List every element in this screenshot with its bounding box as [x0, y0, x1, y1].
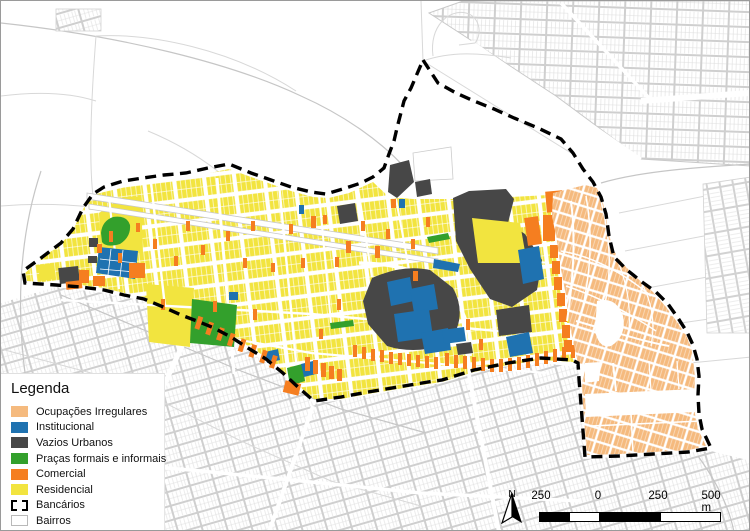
legend-swatch-icon	[11, 437, 28, 448]
legend-item-label: Residencial	[36, 484, 93, 496]
map-screenshot: Legenda Ocupações Irregulares Institucio…	[0, 0, 750, 531]
scale-number: 250	[531, 490, 550, 502]
legend-swatch-icon	[11, 453, 28, 464]
scale-number: 250	[648, 490, 667, 502]
legend-swatch-icon	[11, 469, 28, 480]
legend-item: Institucional	[11, 420, 158, 436]
scale-number: 500 m	[702, 490, 725, 514]
legend-item-label: Bancários	[36, 499, 85, 511]
legend-swatch-icon	[11, 515, 28, 526]
scale-number: 0	[595, 490, 601, 502]
scale-segment	[540, 513, 569, 521]
legend-item-label: Vazios Urbanos	[36, 437, 113, 449]
legend-panel: Legenda Ocupações Irregulares Institucio…	[1, 373, 165, 530]
legend-item: Ocupações Irregulares	[11, 404, 158, 420]
legend-item: Bancários	[11, 498, 158, 514]
scale-segment	[660, 513, 720, 521]
legend-item-label: Bairros	[36, 515, 71, 527]
legend-swatch-icon	[11, 484, 28, 495]
legend-swatch-icon	[11, 406, 28, 417]
scale-bar: 250 0 250 500 m	[501, 490, 736, 526]
legend-item-label: Comercial	[36, 468, 86, 480]
legend-title: Legenda	[11, 380, 158, 397]
legend-swatch-icon	[11, 422, 28, 433]
legend-item: Praças formais e informais	[11, 451, 158, 467]
legend-swatch-icon	[11, 500, 28, 511]
legend-item-label: Praças formais e informais	[36, 453, 166, 465]
legend-item-label: Institucional	[36, 421, 94, 433]
scale-bar-segments	[539, 512, 721, 522]
legend-item: Residencial	[11, 482, 158, 498]
legend-item: Comercial	[11, 466, 158, 482]
legend-item-label: Ocupações Irregulares	[36, 406, 147, 418]
legend-items: Ocupações Irregulares Institucional Vazi…	[11, 404, 158, 529]
legend-item: Vazios Urbanos	[11, 435, 158, 451]
scale-segment	[569, 513, 599, 521]
legend-item: Bairros	[11, 513, 158, 529]
scale-segment	[599, 513, 660, 521]
